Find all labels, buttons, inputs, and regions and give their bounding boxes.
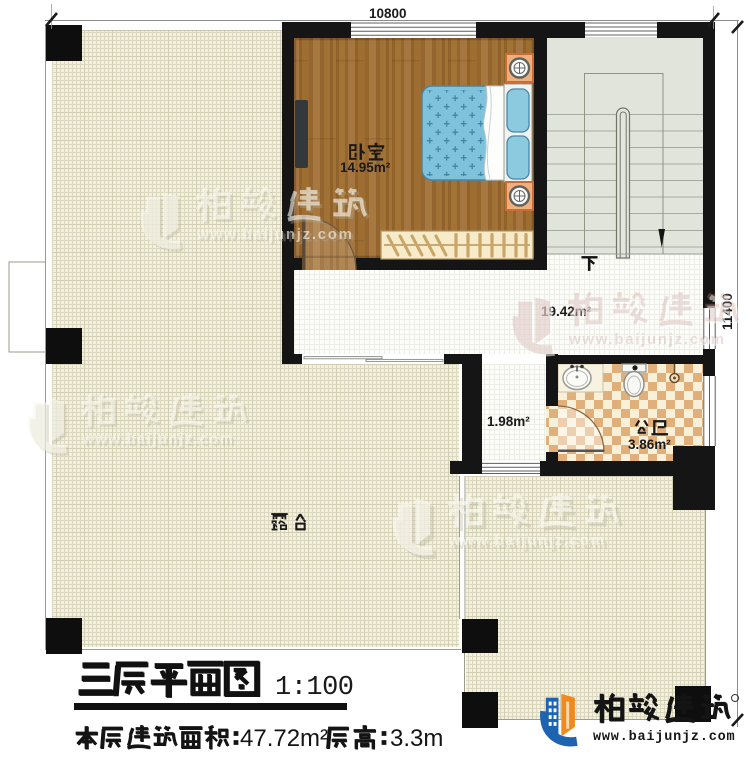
svg-text:14.95m²: 14.95m² <box>340 160 391 175</box>
svg-text:3.86m²: 3.86m² <box>628 437 671 452</box>
svg-text:10800: 10800 <box>369 6 407 21</box>
svg-text:1.98m²: 1.98m² <box>487 414 530 429</box>
svg-text:www.baijunjz.com: www.baijunjz.com <box>593 730 735 745</box>
svg-text:1:100: 1:100 <box>275 673 354 703</box>
svg-text:47.72m²: 47.72m² <box>240 725 328 752</box>
svg-text:3.3m: 3.3m <box>390 725 443 752</box>
